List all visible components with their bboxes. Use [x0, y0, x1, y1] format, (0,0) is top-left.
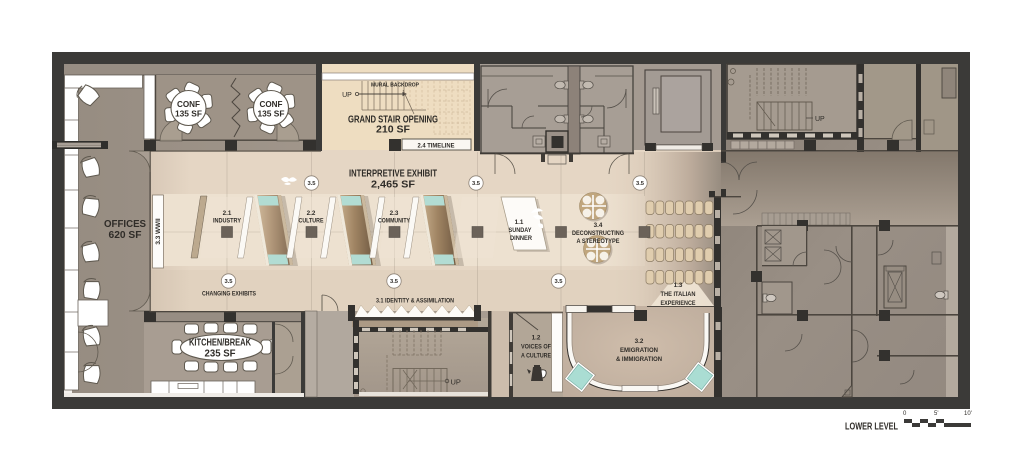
svg-text:UP: UP — [451, 378, 461, 387]
svg-text:2.4 TIMELINE: 2.4 TIMELINE — [418, 142, 455, 149]
svg-text:3.1 IDENTITY & ASSIMILATION: 3.1 IDENTITY & ASSIMILATION — [376, 298, 454, 305]
svg-text:LOWER LEVEL: LOWER LEVEL — [845, 421, 898, 433]
svg-text:SUNDAY: SUNDAY — [509, 227, 533, 234]
svg-text:2.3: 2.3 — [390, 210, 399, 217]
svg-text:3.5: 3.5 — [307, 181, 316, 187]
svg-text:5': 5' — [934, 411, 938, 417]
svg-text:UP: UP — [815, 116, 825, 123]
svg-text:3.5: 3.5 — [224, 279, 233, 285]
svg-text:DINNER: DINNER — [510, 235, 532, 242]
svg-text:3.3 WWII: 3.3 WWII — [155, 218, 162, 244]
svg-text:235 SF: 235 SF — [205, 349, 236, 360]
svg-text:135 SF: 135 SF — [258, 110, 285, 119]
svg-text:DECONSTRUCTING: DECONSTRUCTING — [572, 230, 624, 237]
svg-text:1.2: 1.2 — [532, 335, 541, 342]
svg-text:UP: UP — [342, 92, 352, 99]
svg-text:KITCHEN/BREAK: KITCHEN/BREAK — [189, 338, 251, 349]
svg-text:2.1: 2.1 — [223, 210, 232, 217]
svg-text:210 SF: 210 SF — [376, 124, 411, 136]
svg-text:135 SF: 135 SF — [175, 110, 202, 119]
svg-text:3.5: 3.5 — [390, 279, 399, 285]
svg-text:10': 10' — [964, 411, 972, 417]
svg-text:CONF: CONF — [260, 100, 283, 109]
svg-text:1.1: 1.1 — [515, 219, 524, 226]
svg-text:620 SF: 620 SF — [109, 230, 142, 241]
svg-text:CHANGING EXHIBITS: CHANGING EXHIBITS — [202, 291, 256, 298]
svg-text:2.2: 2.2 — [307, 210, 316, 217]
svg-text:A CULTURE: A CULTURE — [521, 353, 551, 360]
svg-text:CULTURE: CULTURE — [299, 218, 324, 225]
svg-text:THE ITALIAN: THE ITALIAN — [661, 291, 696, 298]
svg-text:2,465 SF: 2,465 SF — [371, 179, 416, 191]
svg-text:3.5: 3.5 — [472, 181, 481, 187]
svg-text:OFFICES: OFFICES — [104, 219, 146, 230]
svg-text:3.5: 3.5 — [636, 181, 645, 187]
svg-text:& IMMIGRATION: & IMMIGRATION — [616, 356, 662, 363]
svg-text:1.3: 1.3 — [674, 282, 683, 289]
svg-text:3.2: 3.2 — [635, 338, 644, 345]
svg-text:CONF: CONF — [177, 100, 200, 109]
svg-text:A STEREOTYPE: A STEREOTYPE — [577, 238, 620, 245]
svg-text:COMMUNITY: COMMUNITY — [378, 218, 411, 225]
svg-text:3.4: 3.4 — [594, 222, 603, 229]
svg-text:EXPERIENCE: EXPERIENCE — [661, 300, 696, 307]
svg-text:INDUSTRY: INDUSTRY — [213, 218, 242, 225]
svg-text:MURAL BACKDROP: MURAL BACKDROP — [371, 83, 419, 89]
svg-text:EMIGRATION: EMIGRATION — [620, 347, 658, 354]
svg-text:VOICES OF: VOICES OF — [521, 344, 551, 351]
svg-text:3.5: 3.5 — [554, 279, 563, 285]
